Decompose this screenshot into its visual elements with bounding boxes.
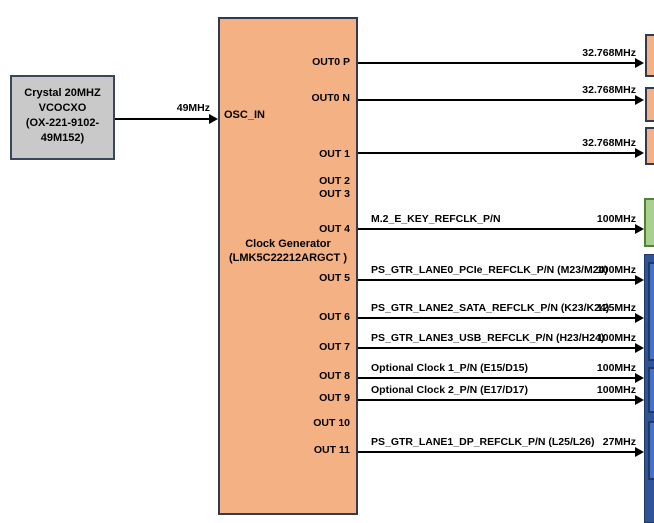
arrow-out9-head	[635, 395, 644, 405]
arrow-out11-shaft	[358, 451, 637, 453]
signal-label-out11: PS_GTR_LANE1_DP_REFCLK_P/N (L25/L26)	[371, 435, 594, 449]
dest-box-blue-inner-1	[648, 262, 654, 361]
arrow-out0n-head	[635, 95, 644, 105]
clock-generator-title-line2: (LMK5C22212ARGCT )	[218, 252, 358, 266]
arrow-out11-head	[635, 447, 644, 457]
arrow-out6-head	[635, 313, 644, 323]
osc-in-pin-label: OSC_IN	[224, 108, 265, 122]
pin-label-out6: OUT 6	[218, 310, 350, 324]
signal-label-out8: Optional Clock 1_P/N (E15/D15)	[371, 361, 528, 375]
freq-label-out9: 100MHz	[556, 383, 636, 397]
arrow-out7-head	[635, 343, 644, 353]
pin-label-out3: OUT 3	[218, 187, 350, 201]
arrow-out0p-head	[635, 58, 644, 68]
pin-label-out10: OUT 10	[218, 416, 350, 430]
arrow-out8-shaft	[358, 377, 637, 379]
pin-label-out1: OUT 1	[218, 147, 350, 161]
arrow-out6-shaft	[358, 317, 637, 319]
arrow-out1-head	[635, 148, 644, 158]
pin-label-out8: OUT 8	[218, 369, 350, 383]
signal-label-out4: M.2_E_KEY_REFCLK_P/N	[371, 212, 501, 226]
input-arrow-head	[209, 114, 218, 124]
arrow-out1-shaft	[358, 152, 637, 154]
input-arrow	[115, 114, 218, 124]
crystal-label-line2: VCOCXO	[10, 101, 115, 116]
signal-label-out7: PS_GTR_LANE3_USB_REFCLK_P/N (H23/H24)	[371, 331, 604, 345]
arrow-out9-shaft	[358, 399, 637, 401]
dest-box-green	[644, 198, 654, 247]
pin-label-out7: OUT 7	[218, 340, 350, 354]
arrow-out4-shaft	[358, 228, 637, 230]
signal-label-out9: Optional Clock 2_P/N (E17/D17)	[371, 383, 528, 397]
signal-label-out6: PS_GTR_LANE2_SATA_REFCLK_P/N (K23/K24)	[371, 301, 609, 315]
input-freq-label: 49MHz	[130, 101, 210, 115]
freq-label-out0p: 32.768MHz	[556, 46, 636, 60]
dest-box-orange-3	[645, 127, 654, 165]
pin-label-out11: OUT 11	[218, 443, 350, 457]
dest-box-orange-1	[645, 34, 654, 77]
arrow-out0n-shaft	[358, 99, 637, 101]
freq-label-out1: 32.768MHz	[556, 136, 636, 150]
pin-label-out0n: OUT0 N	[218, 91, 350, 105]
clock-generator-title-line1: Clock Generator	[218, 238, 358, 252]
freq-label-out8: 100MHz	[556, 361, 636, 375]
arrow-out5-shaft	[358, 279, 637, 281]
arrow-out0p-shaft	[358, 62, 637, 64]
pin-label-out5: OUT 5	[218, 271, 350, 285]
pin-label-out4: OUT 4	[218, 222, 350, 236]
crystal-oscillator-label: Crystal 20MHZ VCOCXO (OX-221-9102- 49M15…	[10, 86, 115, 146]
arrow-out7-shaft	[358, 347, 637, 349]
arrow-out4-head	[635, 224, 644, 234]
clock-tree-diagram: Crystal 20MHZ VCOCXO (OX-221-9102- 49M15…	[0, 0, 654, 523]
freq-label-out4: 100MHz	[556, 212, 636, 226]
pin-label-out2: OUT 2	[218, 174, 350, 188]
dest-box-blue-inner-3	[648, 421, 654, 480]
dest-box-orange-2	[645, 87, 654, 122]
dest-box-blue-inner-2	[648, 367, 654, 413]
crystal-label-line1: Crystal 20MHZ	[10, 86, 115, 101]
clock-generator-title: Clock Generator (LMK5C22212ARGCT )	[218, 238, 358, 265]
crystal-label-line4: 49M152)	[10, 131, 115, 146]
pin-label-out9: OUT 9	[218, 391, 350, 405]
pin-label-out0p: OUT0 P	[218, 55, 350, 69]
freq-label-out0n: 32.768MHz	[556, 83, 636, 97]
crystal-label-line3: (OX-221-9102-	[10, 116, 115, 131]
signal-label-out5: PS_GTR_LANE0_PCIe_REFCLK_P/N (M23/M24)	[371, 263, 608, 277]
input-arrow-shaft	[115, 118, 211, 120]
arrow-out8-head	[635, 373, 644, 383]
arrow-out5-head	[635, 275, 644, 285]
